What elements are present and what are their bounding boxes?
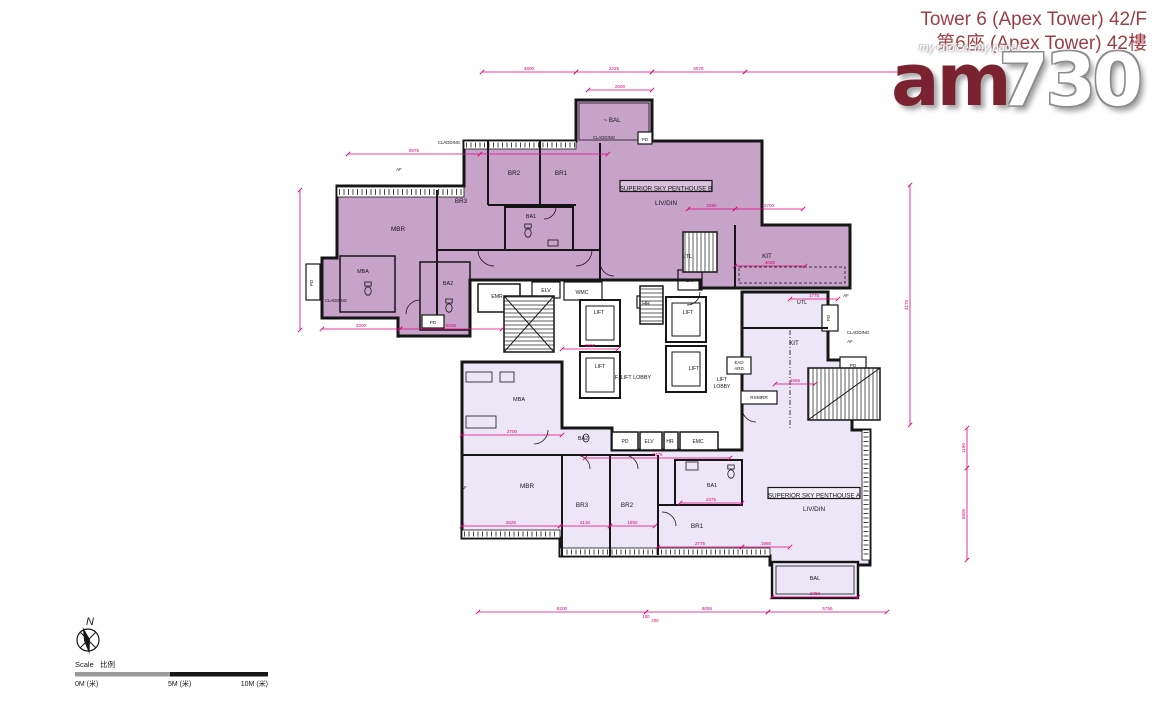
room-label: RSMRR (750, 395, 768, 401)
room-label: PD (642, 137, 648, 142)
dimension-label: 2625 (506, 520, 517, 525)
room-label: BR1 (555, 170, 568, 177)
room-label: BAL (810, 576, 821, 582)
dimension-label: 2375 (706, 497, 717, 502)
scale-title-en: Scale (75, 660, 94, 669)
room-label: LOBBY (714, 384, 731, 390)
room-label: BA1 (707, 483, 717, 489)
dimension-label: 1775 (809, 293, 820, 298)
scale-segment-5-10 (170, 672, 268, 677)
room-label: BR2 (621, 502, 634, 509)
room-label: BR1 (691, 523, 704, 530)
dimension-label: 1190 (961, 443, 966, 453)
room-label: LIFT (689, 366, 700, 372)
scale-segment-0-5 (75, 672, 170, 677)
annotation-label: AF (843, 293, 849, 298)
annotation-label: AF (847, 339, 853, 344)
room-label: PD (850, 363, 857, 368)
dimension-label: 5755 (822, 606, 833, 611)
dimension-label: 2380 (706, 203, 717, 208)
dimension-label: 100 (642, 614, 650, 619)
room-label: EMC (692, 439, 704, 445)
room-label: ~ BAL (603, 117, 621, 124)
annotation-label: AF (461, 485, 467, 490)
annotation-label: AF (396, 334, 402, 339)
room-label: LIV/DIN (803, 506, 825, 513)
dimension-label: 8975 (409, 148, 420, 153)
north-compass: N (77, 616, 99, 655)
dimension-label: 6035 (446, 323, 457, 328)
dimension-label: 8200 (557, 606, 568, 611)
annotation-label: CLADDING (593, 135, 616, 140)
floorplan-page: MBRBR3BR2BR1BA1MBABA2LIV/DIN~ BALUTLKITL… (0, 0, 1161, 704)
dimension-line: 1190 (961, 426, 969, 470)
room-label: ELV (541, 288, 551, 294)
room-label: BA2 (443, 281, 453, 287)
room-label: F. LIFT LOBBY (615, 375, 652, 381)
unit-name-label: SUPERIOR SKY PENTHOUSE B (620, 186, 712, 193)
dimension-line: 3300 (320, 323, 402, 331)
unit-name-box: SUPERIOR SKY PENTHOUSE B (620, 181, 712, 193)
room-label: HR (666, 439, 674, 445)
room-label: BR3 (576, 502, 589, 509)
dimension-line: 5805 (961, 466, 969, 562)
dimension-label: 1980 (761, 541, 772, 546)
room-label: LIFT (683, 310, 694, 316)
dimension-line: 4175 (904, 183, 912, 427)
room-label: ELV (644, 439, 654, 445)
dimension-label: 2130 (580, 520, 591, 525)
dimension-line: 6055 (644, 606, 770, 614)
dimension-label: 7475 (652, 452, 663, 457)
room-label: BR3 (455, 198, 468, 205)
scale-title-zh: 比例 (100, 659, 115, 669)
dimension-label: 2775 (695, 541, 706, 546)
room-label: PD (622, 439, 629, 445)
dimension-line (743, 70, 907, 74)
room-label: MBA (357, 269, 369, 275)
room-label: KIT (789, 340, 799, 347)
dimension-line: 8200 (476, 606, 648, 614)
scale-bar: Scale 比例 0M (米) 5M (米) 10M (米) (75, 659, 268, 688)
room-label: UTL (797, 300, 807, 306)
room-label: MBA (513, 397, 525, 403)
dimension-label: 2700 (764, 203, 775, 208)
dimension-line: 8975 (346, 148, 482, 156)
dimension-label: 4000 (765, 260, 776, 265)
dimension-label: 4175 (904, 299, 909, 310)
dimension-label: 2700 (507, 429, 518, 434)
dimension-label: 2225 (609, 66, 620, 71)
floorplan-drawing: MBRBR3BR2BR1BA1MBABA2LIV/DIN~ BALUTLKITL… (0, 0, 1161, 704)
room-label: LAV (686, 278, 695, 283)
north-label: N (86, 616, 94, 628)
annotation-label: CLADDING (847, 330, 870, 335)
dimension-label: 2750 (810, 591, 821, 596)
scale-tick-0: 0M (米) (75, 679, 98, 688)
room-label: LIFT (594, 310, 605, 316)
room-label: BA2 (578, 436, 588, 442)
room-label: LIV/DIN (655, 200, 677, 207)
annotation-label: CLADDING (325, 298, 348, 303)
unit-name-label: SUPERIOR SKY PENTHOUSE A (768, 493, 861, 500)
page-title-line1: Tower 6 (Apex Tower) 42/F (920, 8, 1147, 32)
dimension-label: 2800 (585, 343, 596, 348)
dimension-label: 5805 (961, 508, 966, 519)
room-label: UTL (682, 254, 692, 260)
dimension-line: 2600 (586, 84, 654, 92)
dimension-label: 3300 (356, 323, 367, 328)
room-label: MBR (520, 483, 534, 490)
dimension-label: 1965 (790, 378, 801, 383)
annotation-label: AF (396, 167, 402, 172)
room-label: KIT (762, 253, 772, 260)
room-label: BR2 (508, 170, 521, 177)
dimension-line: 6075 (650, 66, 747, 74)
scale-tick-5: 5M (米) (168, 679, 191, 688)
dimension-label: 2600 (615, 84, 626, 89)
room-label: MBR (391, 226, 405, 233)
room-label: ARD (734, 366, 743, 371)
dimension-label: 6075 (693, 66, 704, 71)
room-label: PD (309, 279, 314, 286)
dimension-label: 6055 (702, 606, 713, 611)
room-label: EMR (491, 294, 503, 300)
room-label: BA1 (526, 214, 536, 220)
dimension-line: 2225 (574, 66, 654, 74)
room-label: EAD (734, 360, 743, 365)
dimension-label: 1850 (627, 520, 638, 525)
dimension-label: 4800 (524, 66, 535, 71)
room-label: LIFT (717, 377, 727, 383)
unit-name-box: SUPERIOR SKY PENTHOUSE A (768, 488, 861, 500)
dimension-line (298, 188, 302, 332)
annotation-label: CLADDING (438, 140, 461, 145)
room-label: WMC (576, 290, 589, 296)
page-title-line2: 第6座 (Apex Tower) 42樓 (920, 32, 1147, 56)
dimension-line: 4800 (480, 66, 578, 74)
dimension-label: 200 (651, 618, 659, 623)
room-label: LIFT (595, 364, 606, 370)
dimension-line: 5755 (766, 606, 889, 614)
room-label: PD (826, 314, 831, 321)
scale-tick-10: 10M (米) (241, 679, 268, 688)
page-title: Tower 6 (Apex Tower) 42/F 第6座 (Apex Towe… (920, 8, 1147, 56)
room-label: HR (642, 301, 650, 307)
room-label: PD (430, 320, 437, 325)
